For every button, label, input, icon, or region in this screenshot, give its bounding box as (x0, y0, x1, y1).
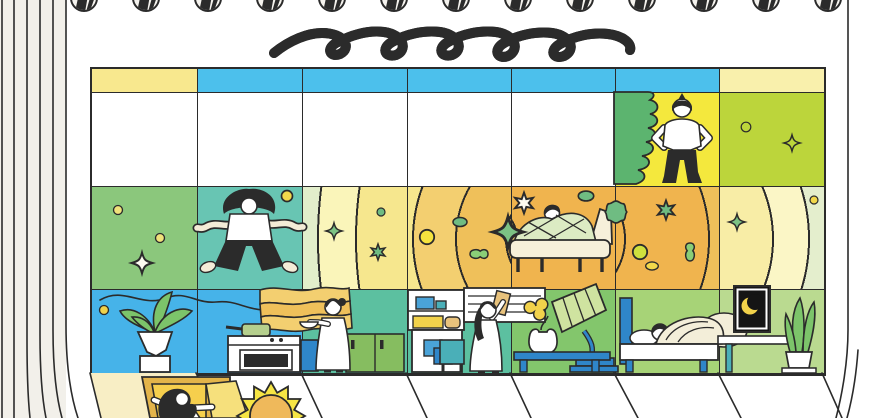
cell-r3c7 (720, 187, 824, 290)
cell-r3c5 (512, 187, 616, 290)
header-cell-7 (720, 69, 824, 93)
binder-ring-icon (133, 0, 159, 12)
cell-r2c3 (303, 93, 408, 187)
binder-ring-icon (443, 0, 469, 12)
cell-r4c2 (198, 290, 303, 374)
cell-r2c6 (616, 93, 720, 187)
calendar-grid (90, 67, 826, 376)
binder-ring-icon (319, 0, 345, 12)
bottom-row-curl (90, 373, 842, 418)
header-cell-4 (408, 69, 512, 93)
binder-ring-icon (257, 0, 283, 12)
notebook-page-edge-stripes (0, 0, 78, 418)
header-cell-5 (512, 69, 616, 93)
binder-ring-icon (195, 0, 221, 12)
cell-r2c7 (720, 93, 824, 187)
binder-rings (71, 0, 841, 12)
sun-icon (237, 382, 305, 418)
binder-ring-icon (753, 0, 779, 12)
cell-r4c5 (512, 290, 616, 374)
binder-ring-icon (71, 0, 97, 12)
cell-r4c3 (303, 290, 408, 374)
cell-r3c6 (616, 187, 720, 290)
cell-r3c1 (92, 187, 198, 290)
cell-r2c4 (408, 93, 512, 187)
page-right-edge (836, 0, 858, 418)
cell-r4c1 (92, 290, 198, 374)
cell-r2c5 (512, 93, 616, 187)
binder-ring-icon (381, 0, 407, 12)
header-cell-6 (616, 69, 720, 93)
binder-ring-icon (691, 0, 717, 12)
binder-ring-icon (629, 0, 655, 12)
cell-r2c1 (92, 93, 198, 187)
cell-r3c2 (198, 187, 303, 290)
binder-ring-icon (567, 0, 593, 12)
cell-r3c4 (408, 187, 512, 290)
cell-r4c4 (408, 290, 512, 374)
cell-r2c2 (198, 93, 303, 187)
scene-doorway-stretch (142, 377, 248, 418)
binder-ring-icon (505, 0, 531, 12)
scribble-mark (274, 31, 630, 56)
illustration-canvas (0, 0, 870, 418)
binder-ring-icon (815, 0, 841, 12)
cell-r4c7 (720, 290, 824, 374)
cell-r3c3 (303, 187, 408, 290)
cell-r4c6 (616, 290, 720, 374)
header-cell-3 (303, 69, 408, 93)
header-cell-2 (198, 69, 303, 93)
header-cell-1 (92, 69, 198, 93)
